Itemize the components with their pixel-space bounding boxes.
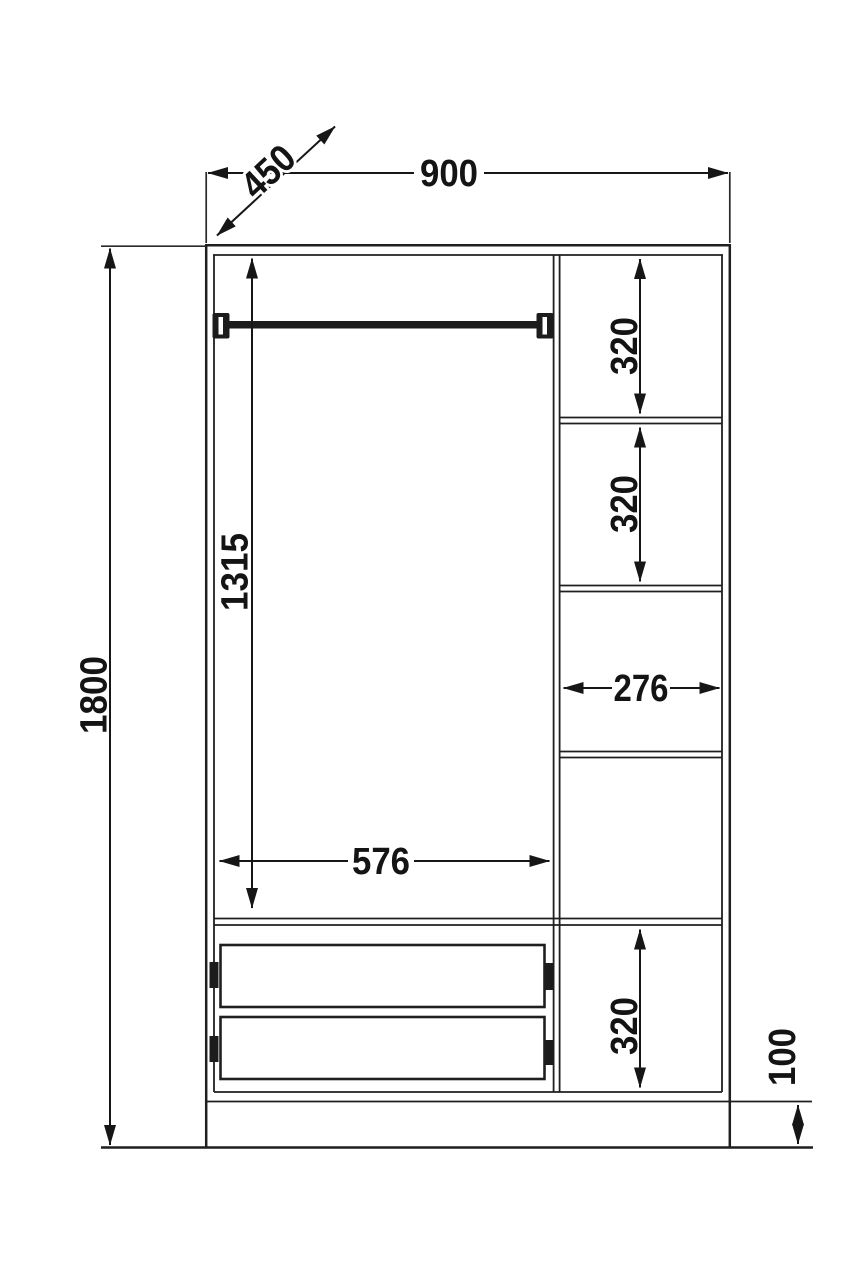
dim-label-shelf-spacing-1: 320 [604, 317, 646, 375]
wardrobe-dimension-drawing: 900 450 1800 1315 576 276 320 320 [0, 0, 853, 1280]
rod-bracket-left-slot [219, 317, 224, 335]
drawer-1-right-slide [545, 963, 554, 990]
dim-label-hanging-space: 1315 [215, 533, 257, 611]
hanging-rod [213, 313, 554, 339]
drawing-canvas: 900 450 1800 1315 576 276 320 320 [0, 0, 853, 1280]
dim-shelf-spacing-1: 320 [604, 259, 646, 414]
dim-label-overall-height: 1800 [74, 656, 116, 734]
dim-shelf-spacing-3: 320 [604, 930, 646, 1088]
rod-bracket-right-slot [543, 317, 548, 335]
drawer-2-left-slide [210, 1036, 219, 1062]
drawer-1-front [221, 945, 545, 1007]
drawer-2-right-slide [545, 1040, 554, 1065]
hanging-rod-bar [226, 321, 541, 329]
dim-label-plinth-height: 100 [762, 1028, 804, 1086]
drawer-2-front [221, 1017, 545, 1079]
dim-shelf-spacing-2: 320 [604, 428, 646, 582]
dim-overall-height: 1800 [74, 246, 206, 1145]
drawers [210, 945, 554, 1079]
dim-plinth-height: 100 [762, 1028, 804, 1144]
dim-label-depth: 450 [233, 137, 304, 207]
dim-label-shelf-spacing-3: 320 [604, 997, 646, 1055]
dim-depth: 450 [217, 127, 335, 236]
dim-label-drawer-section-width: 576 [352, 841, 410, 883]
dim-drawer-section-width: 576 [220, 841, 550, 883]
dim-hanging-space-height: 1315 [215, 259, 257, 909]
dim-shelf-section-width: 276 [564, 668, 720, 710]
dim-label-shelf-spacing-2: 320 [604, 475, 646, 533]
dim-label-shelf-section-width: 276 [614, 668, 669, 710]
dim-label-overall-width: 900 [420, 153, 478, 195]
drawer-1-left-slide [210, 962, 219, 988]
cabinet-carcass [101, 244, 813, 1148]
